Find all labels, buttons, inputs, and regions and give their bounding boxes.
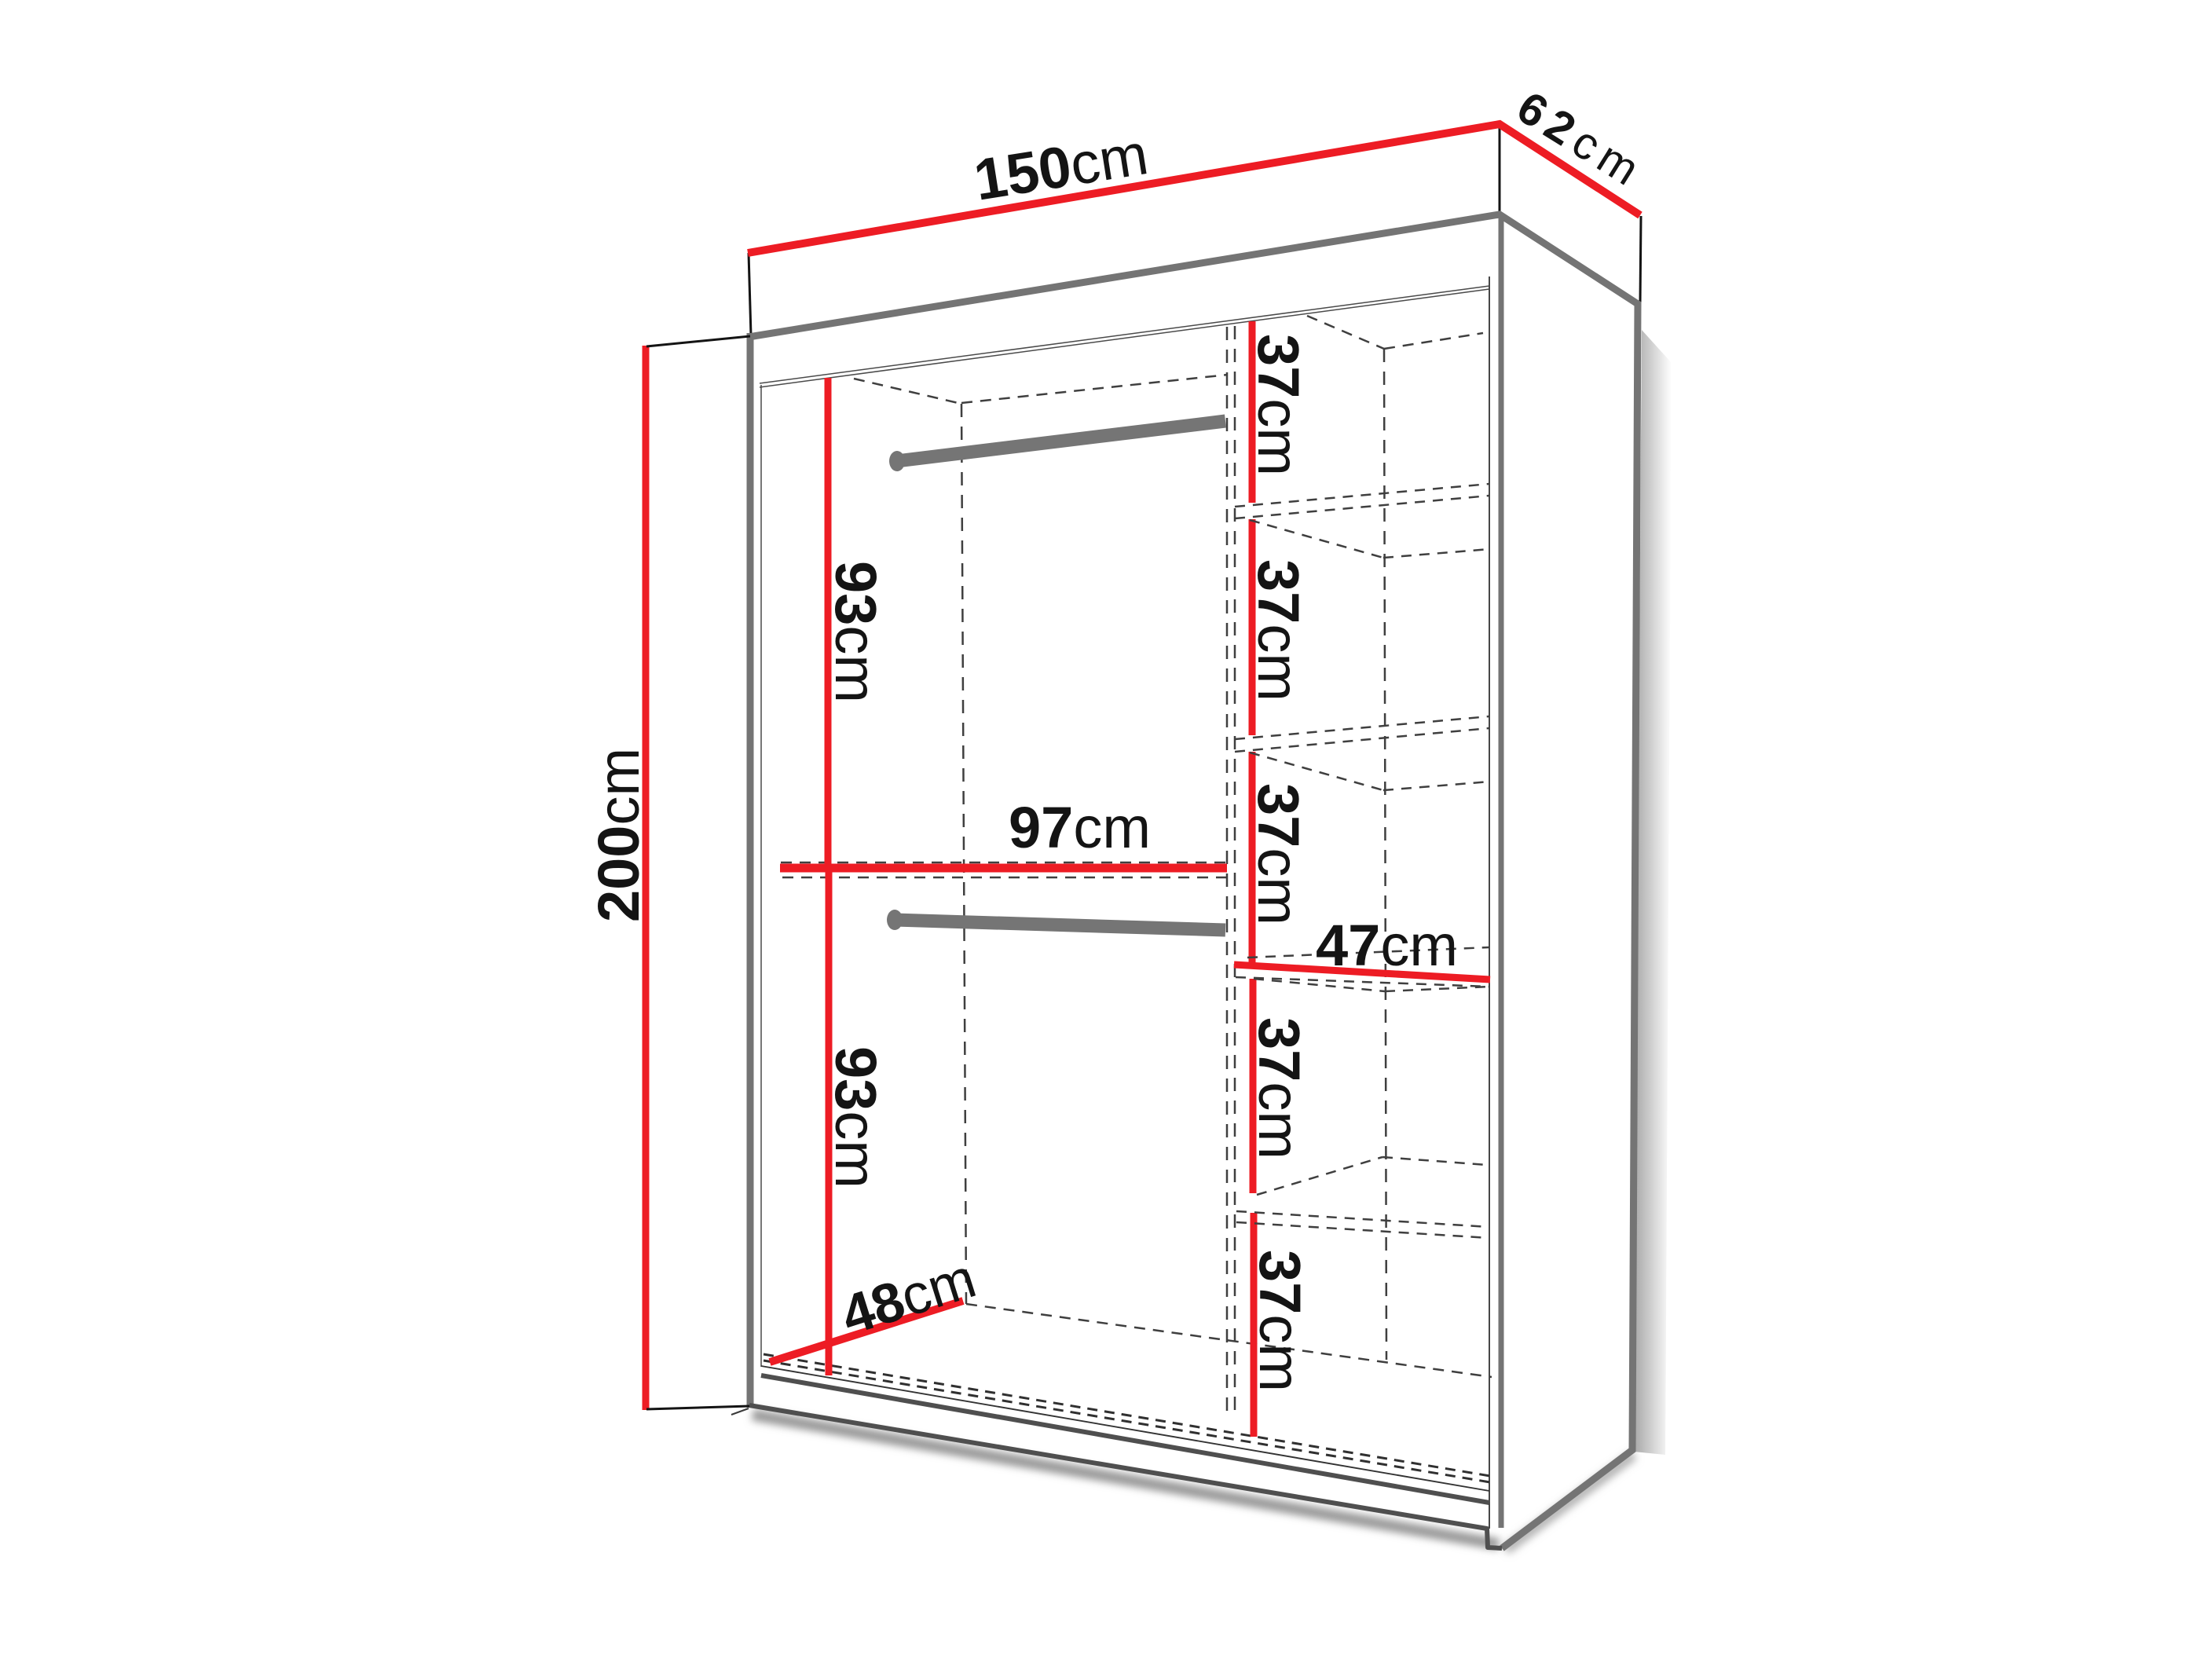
svg-text:37cm: 37cm — [1246, 559, 1311, 701]
svg-text:47cm: 47cm — [1316, 913, 1458, 978]
svg-text:37cm: 37cm — [1246, 783, 1311, 925]
svg-text:37cm: 37cm — [1246, 334, 1311, 476]
svg-text:37cm: 37cm — [1247, 1017, 1312, 1159]
svg-text:93cm: 93cm — [823, 1046, 888, 1188]
svg-text:93cm: 93cm — [823, 561, 888, 703]
svg-text:200cm: 200cm — [586, 748, 651, 922]
svg-text:97cm: 97cm — [1009, 795, 1151, 860]
svg-text:37cm: 37cm — [1247, 1250, 1313, 1392]
